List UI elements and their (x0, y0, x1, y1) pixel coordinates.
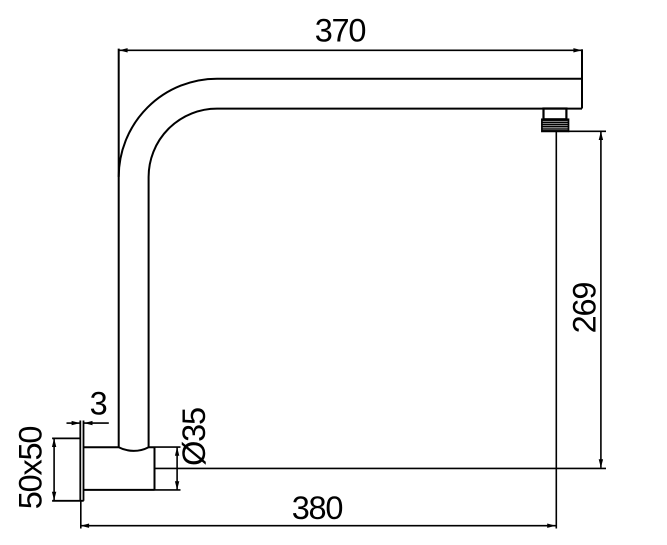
svg-text:370: 370 (315, 13, 366, 49)
svg-text:50x50: 50x50 (13, 427, 49, 510)
svg-text:Ø35: Ø35 (176, 408, 212, 466)
svg-text:380: 380 (292, 490, 343, 526)
svg-text:3: 3 (90, 386, 107, 422)
svg-text:269: 269 (567, 283, 603, 334)
